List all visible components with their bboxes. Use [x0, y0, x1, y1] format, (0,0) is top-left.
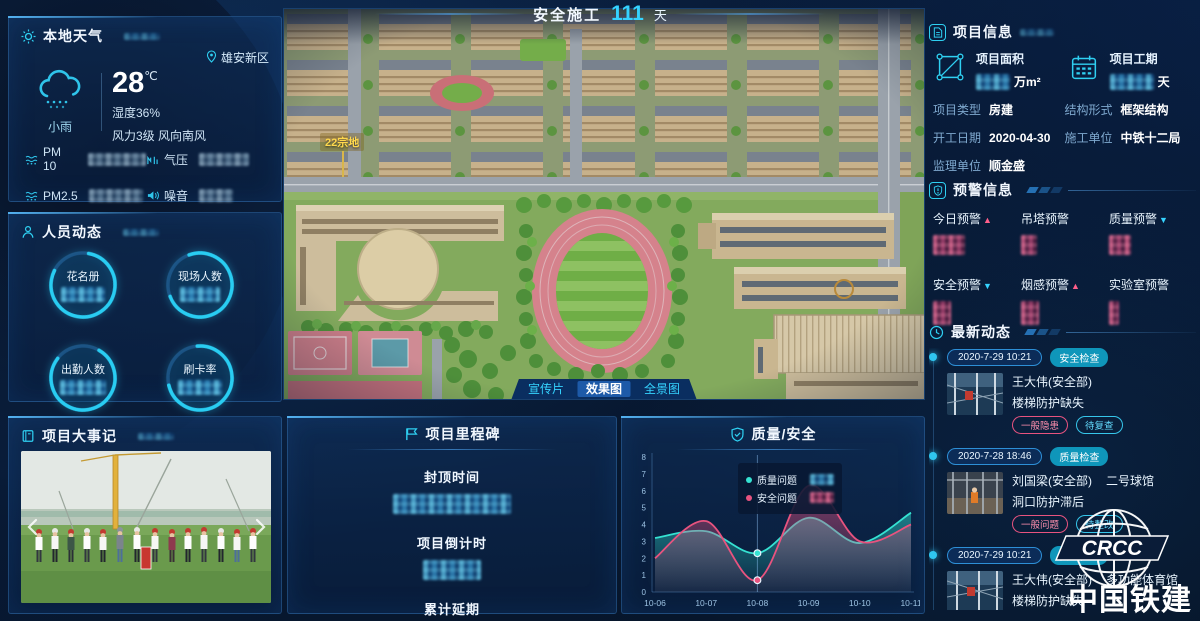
carousel-next-button[interactable]	[251, 513, 269, 541]
entry-date-badge: 2020-7-29 10:21	[947, 547, 1042, 564]
censored-header-value	[1020, 29, 1054, 36]
safety-series-label: 安全问题	[757, 490, 797, 505]
censored-header-value	[124, 33, 160, 40]
censored-value	[89, 189, 143, 202]
trend-down-icon: ▼	[983, 281, 992, 291]
dashboard: 安全施工 111 天 本地天气 雄安新区 小雨 28℃	[0, 0, 1200, 621]
milestone-label: 项目倒计时	[288, 533, 616, 552]
censored-value	[393, 494, 511, 514]
svg-text:4: 4	[642, 521, 647, 530]
calendar-icon	[1067, 50, 1101, 89]
field-value: 框架结构	[1121, 103, 1169, 117]
location-badge: 雄安新区	[206, 49, 269, 66]
divider	[101, 73, 102, 131]
entry-person: 王大伟(安全部)	[1012, 573, 1092, 587]
safety-days-value: 111	[611, 2, 644, 26]
field-label: 监理单位	[933, 159, 981, 173]
feed-title: 最新动态	[951, 322, 1011, 342]
ring-label: 刷卡率	[184, 361, 217, 377]
feed-entry[interactable]: 2020-7-28 18:46 质量检查 刘国梁(安全部)二号球馆 洞口防护滞后…	[929, 447, 1196, 533]
personnel-rings: 花名册 现场人数 出勤人数 刷卡率	[9, 243, 281, 403]
temperature-value: 28	[112, 67, 144, 99]
field-label: 开工日期	[933, 131, 981, 145]
tab-promo-video[interactable]: 宣传片	[528, 383, 564, 395]
header-decor-line	[675, 13, 825, 15]
top-header: 安全施工 111 天	[0, 2, 1200, 26]
project-stats: 项目面积 万m² 项目工期 天	[933, 50, 1196, 91]
ring-roster: 花名册	[47, 249, 119, 321]
quality-safety-title: 质量/安全	[752, 424, 817, 444]
aerial-render-view: 22宗地 宣传片 效果图 全景图	[283, 8, 925, 400]
milestone-label: 累计延期	[288, 599, 616, 618]
weather-condition: 小雨	[25, 118, 95, 135]
censored-header-value	[138, 433, 174, 440]
header-dashes	[1028, 187, 1061, 193]
warnings-section: 预警信息 今日预警▲ 吊塔预警 质量预警▼ 安全预警▼ 烟感预警▲ 实验室预警	[929, 180, 1196, 318]
wind-label: 风力3级 风向南风	[112, 127, 206, 144]
header-line	[1066, 332, 1196, 333]
area-icon	[933, 50, 967, 89]
noise-icon	[146, 190, 159, 201]
location-label: 雄安新区	[221, 49, 269, 66]
svg-text:5: 5	[642, 504, 647, 513]
field-value: 顺金盛	[989, 159, 1025, 173]
entry-photo	[947, 571, 1003, 610]
warning-item-quality: 质量预警▼	[1109, 210, 1197, 260]
events-title: 项目大事记	[42, 426, 117, 446]
feed-entry[interactable]: 2020-7-29 10:21 安全检查 王大伟(安全部) 楼梯防护缺失 一般隐…	[929, 348, 1196, 434]
clock-icon	[929, 325, 944, 340]
censored-value	[199, 189, 233, 202]
censored-value	[933, 235, 965, 255]
sun-icon	[21, 29, 36, 44]
header-line	[1068, 190, 1196, 191]
quality-series-label: 质量问题	[757, 472, 797, 487]
svg-text:0: 0	[642, 588, 647, 597]
entry-category-badge: 安全检查	[1050, 348, 1108, 367]
warnings-title: 预警信息	[953, 180, 1013, 200]
humidity-label: 湿度36%	[112, 104, 206, 121]
censored-value	[60, 380, 106, 395]
censored-value	[178, 380, 222, 395]
weather-current: 小雨 28℃ 湿度36% 风力3级 风向南风	[25, 69, 206, 144]
project-fields: 项目类型房建 结构形式框架结构 开工日期2020-04-30 施工单位中铁十二局…	[933, 101, 1196, 174]
field-label: 项目类型	[933, 103, 981, 117]
entry-location: 多功能体育馆	[1106, 573, 1178, 587]
ring-label: 出勤人数	[61, 361, 105, 377]
tab-panorama[interactable]: 全景图	[644, 383, 680, 395]
censored-value	[810, 492, 834, 503]
svg-text:8: 8	[642, 453, 647, 462]
censored-value	[810, 474, 834, 485]
duration-label: 项目工期	[1110, 50, 1170, 67]
area-unit: 万m²	[1014, 75, 1041, 89]
chart-tooltip: 质量问题 安全问题	[738, 463, 842, 514]
header-dashes	[1026, 329, 1059, 335]
svg-text:10-07: 10-07	[695, 598, 717, 608]
field-label: 施工单位	[1065, 131, 1113, 145]
metric-label: 气压	[164, 151, 188, 168]
weather-panel: 本地天气 雄安新区 小雨 28℃ 湿度36% 风力3级 风向南风 PM 10 气…	[8, 16, 282, 202]
events-panel: 项目大事记	[8, 416, 282, 614]
field-value: 中铁十二局	[1121, 131, 1181, 145]
svg-text:3: 3	[642, 537, 647, 546]
duration-unit: 天	[1158, 75, 1170, 89]
entry-category-badge: 安全检查	[1050, 546, 1108, 565]
personnel-panel: 人员动态 花名册 现场人数 出勤人数 刷卡率	[8, 212, 282, 402]
flag-icon	[404, 427, 419, 441]
ring-label: 现场人数	[178, 268, 222, 284]
temperature-unit: ℃	[144, 69, 157, 83]
svg-text:10-08: 10-08	[747, 598, 769, 608]
svg-text:6: 6	[642, 487, 647, 496]
censored-value	[199, 153, 249, 166]
entry-date-badge: 2020-7-29 10:21	[947, 349, 1042, 366]
entry-date-badge: 2020-7-28 18:46	[947, 448, 1042, 465]
feed-list: 2020-7-29 10:21 安全检查 王大伟(安全部) 楼梯防护缺失 一般隐…	[929, 348, 1196, 610]
svg-text:7: 7	[642, 470, 647, 479]
svg-text:10-11: 10-11	[900, 598, 920, 608]
trend-up-icon: ▲	[983, 215, 992, 225]
aerial-render	[284, 9, 925, 400]
ring-label: 花名册	[67, 268, 100, 284]
svg-text:10-10: 10-10	[849, 598, 871, 608]
weather-title: 本地天气	[43, 26, 103, 46]
document-icon	[929, 24, 946, 41]
parcel-label: 22宗地	[320, 133, 364, 151]
personnel-title: 人员动态	[42, 222, 102, 242]
notebook-icon	[21, 429, 35, 443]
censored-value	[976, 74, 1010, 90]
group-photo	[21, 451, 271, 603]
status-badge: 待复查	[1076, 416, 1123, 434]
safety-days-unit: 天	[654, 5, 667, 24]
milestone-label: 封顶时间	[288, 467, 616, 486]
svg-text:10-09: 10-09	[798, 598, 820, 608]
entry-issue: 楼梯防护缺失	[1012, 394, 1123, 411]
field-label: 结构形式	[1065, 103, 1113, 117]
ring-onsite: 现场人数	[164, 249, 236, 321]
events-photo	[21, 451, 271, 603]
header-decor-line	[375, 13, 525, 15]
censored-value	[423, 560, 481, 580]
tab-render-view[interactable]: 效果图	[578, 381, 630, 397]
svg-text:10-06: 10-06	[644, 598, 666, 608]
metric-label: PM 10	[43, 145, 77, 173]
ring-attendance: 出勤人数	[47, 342, 119, 414]
censored-value	[180, 287, 220, 302]
entry-location: 二号球馆	[1106, 474, 1154, 488]
entry-issue: 洞口防护滞后	[1012, 493, 1154, 510]
safety-days-label: 安全施工	[533, 4, 601, 25]
field-value: 房建	[989, 103, 1013, 117]
entry-person: 刘国梁(安全部)	[1012, 474, 1092, 488]
alert-icon	[929, 182, 946, 199]
person-icon	[21, 225, 35, 239]
severity-badge: 一般隐患	[1012, 416, 1068, 434]
rain-cloud-icon	[34, 98, 86, 115]
severity-badge: 一般问题	[1012, 515, 1068, 533]
censored-header-value	[123, 229, 159, 236]
entry-category-badge: 质量检查	[1050, 447, 1108, 466]
haze-icon	[25, 190, 38, 201]
milestone-title: 项目里程碑	[426, 424, 501, 444]
entry-photo	[947, 472, 1003, 514]
area-label: 项目面积	[976, 50, 1041, 67]
carousel-prev-button[interactable]	[23, 513, 41, 541]
metric-label: PM2.5	[43, 189, 78, 203]
censored-value	[1021, 235, 1037, 255]
warning-item-today: 今日预警▲	[933, 210, 1021, 260]
safety-series-dot	[746, 495, 752, 501]
project-info-section: 项目信息 项目面积 万m² 项目工期 天 项目类型房建 结构形式框架结构	[929, 22, 1196, 174]
svg-text:1: 1	[642, 571, 647, 580]
censored-value	[1110, 74, 1154, 90]
entry-photo	[947, 373, 1003, 415]
milestone-panel: 项目里程碑 封顶时间 项目倒计时 累计延期	[287, 416, 617, 614]
trend-up-icon: ▲	[1071, 281, 1080, 291]
entry-issue: 楼梯防护缺失	[1012, 592, 1178, 609]
pressure-icon	[146, 154, 159, 165]
ring-swipe-rate: 刷卡率	[164, 342, 236, 414]
warnings-grid: 今日预警▲ 吊塔预警 质量预警▼ 安全预警▼ 烟感预警▲ 实验室预警	[933, 210, 1196, 330]
censored-value	[61, 287, 105, 302]
status-badge: 待整改	[1076, 515, 1123, 533]
trend-down-icon: ▼	[1159, 215, 1168, 225]
svg-text:2: 2	[642, 554, 647, 563]
view-tabs: 宣传片 效果图 全景图	[512, 379, 697, 399]
milestone-items: 封顶时间 项目倒计时 累计延期	[288, 453, 616, 621]
shield-check-icon	[730, 427, 745, 442]
feed-entry[interactable]: 2020-7-29 10:21 安全检查 王大伟(安全部)多功能体育馆 楼梯防护…	[929, 546, 1196, 610]
warning-item-crane: 吊塔预警	[1021, 210, 1109, 260]
location-pin-icon	[206, 50, 217, 66]
field-value: 2020-04-30	[989, 131, 1050, 145]
censored-value	[88, 153, 146, 166]
censored-value	[1109, 235, 1131, 255]
entry-person: 王大伟(安全部)	[1012, 375, 1092, 389]
weather-metrics: PM 10 气压 PM2.5 噪音	[25, 145, 267, 204]
quality-safety-panel: 质量/安全 01234567810-0610-0710-0810-0910-10…	[621, 416, 925, 614]
quality-series-dot	[746, 477, 752, 483]
feed-section: 最新动态 2020-7-29 10:21 安全检查 王大伟(安全部) 楼梯防护缺…	[929, 322, 1196, 621]
haze-icon	[25, 154, 38, 165]
metric-label: 噪音	[164, 187, 188, 204]
